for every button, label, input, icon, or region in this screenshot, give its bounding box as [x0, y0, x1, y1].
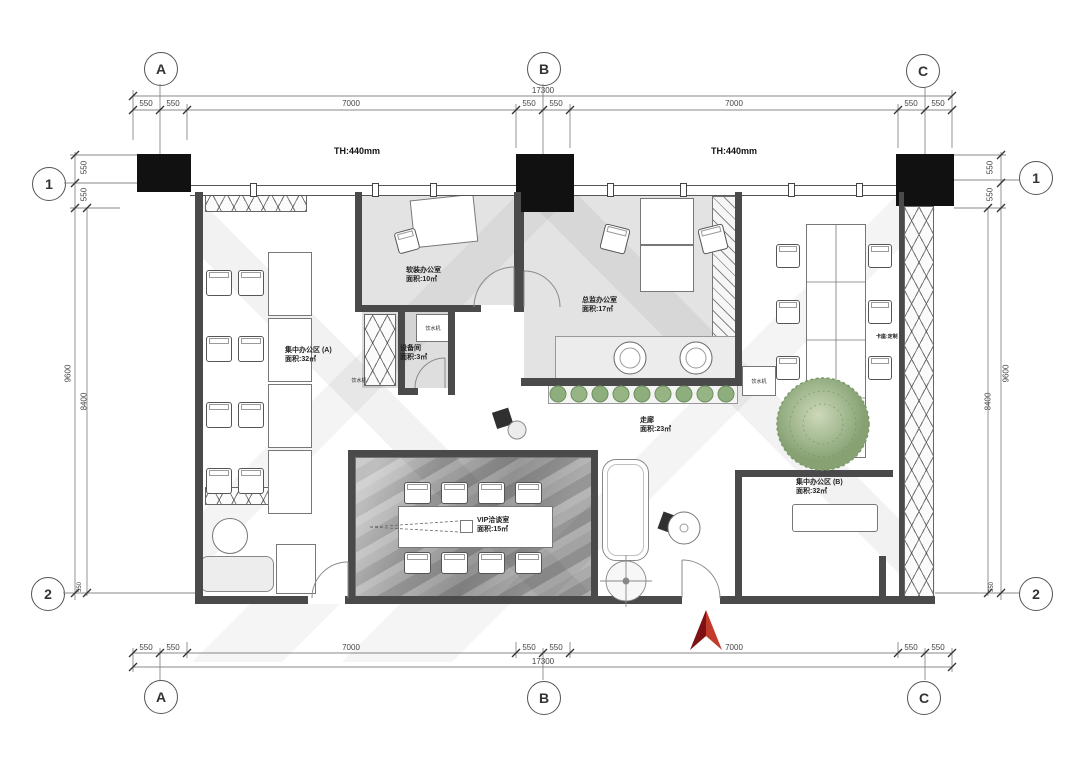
dimension-ticks-left — [71, 151, 91, 597]
north-arrow-icon — [690, 610, 722, 650]
dimension-ticks-right — [984, 151, 1005, 597]
large-plant — [777, 378, 869, 470]
corridor-seat-set — [492, 408, 700, 544]
dimension-lines-right — [935, 152, 1019, 600]
dimension-lines-left — [63, 152, 195, 600]
dimension-lines-bottom — [133, 642, 952, 680]
dimension-ticks-bottom — [129, 649, 956, 671]
dimension-ticks-top — [129, 92, 956, 114]
dimension-lines-top — [133, 84, 952, 154]
pedestal-table — [600, 555, 652, 607]
linework-layer — [0, 0, 1080, 764]
leader-lines — [370, 521, 459, 532]
round-stools — [614, 342, 712, 374]
floor-plan: 饮水机 饮水机 饮水机 — [0, 0, 1080, 764]
planter-plants — [550, 386, 734, 402]
